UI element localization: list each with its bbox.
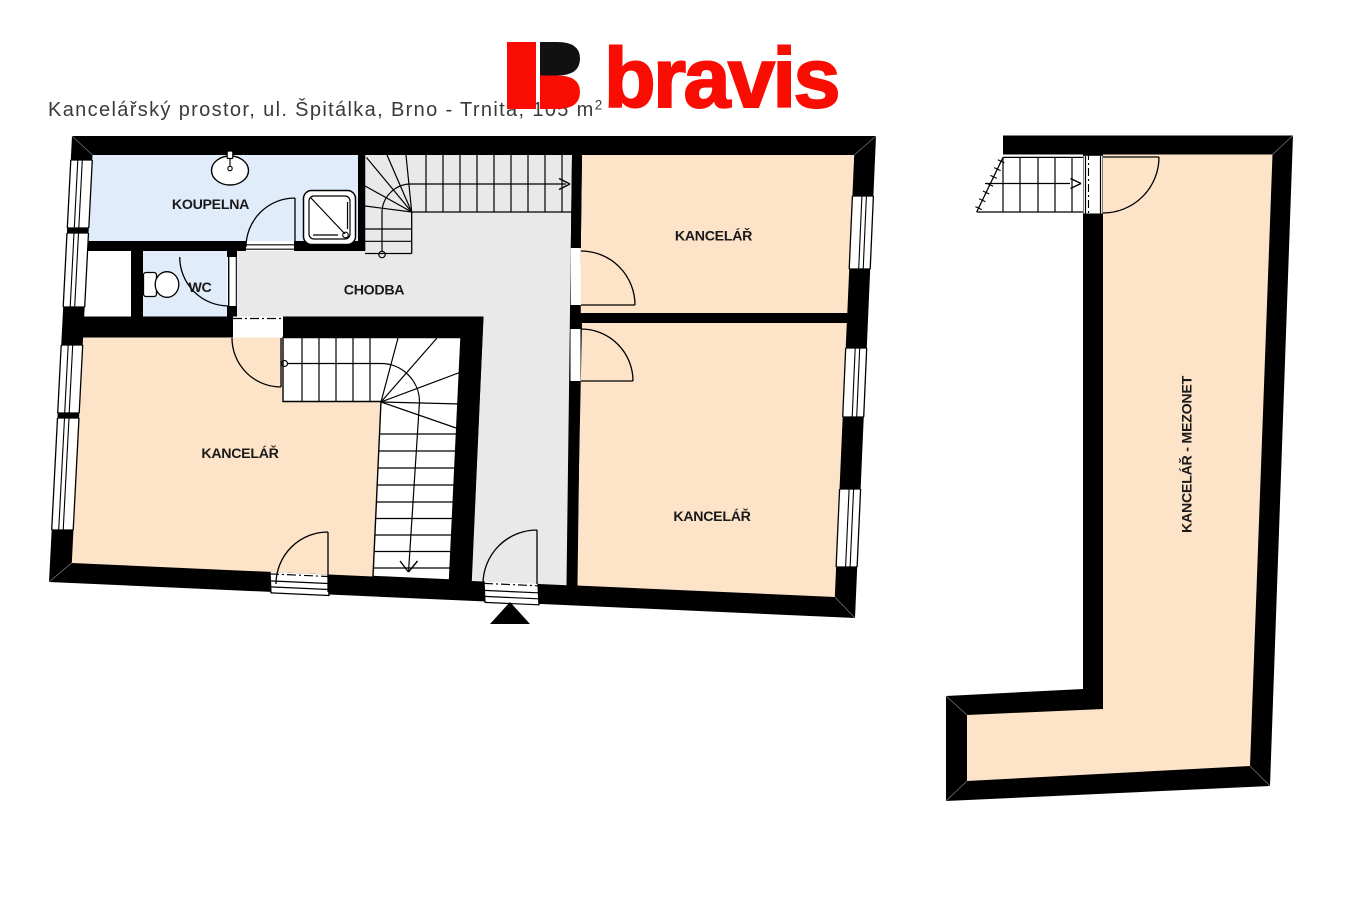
svg-text:KOUPELNA: KOUPELNA <box>172 197 249 213</box>
svg-text:KANCELÁŘ: KANCELÁŘ <box>675 227 752 245</box>
svg-text:KANCELÁŘ: KANCELÁŘ <box>673 507 750 525</box>
svg-text:KANCELÁŘ - MEZONET: KANCELÁŘ - MEZONET <box>1178 375 1196 533</box>
svg-text:KANCELÁŘ: KANCELÁŘ <box>201 444 278 462</box>
svg-text:bravis: bravis <box>604 31 838 125</box>
svg-text:WC: WC <box>188 280 211 296</box>
svg-text:CHODBA: CHODBA <box>344 283 405 299</box>
